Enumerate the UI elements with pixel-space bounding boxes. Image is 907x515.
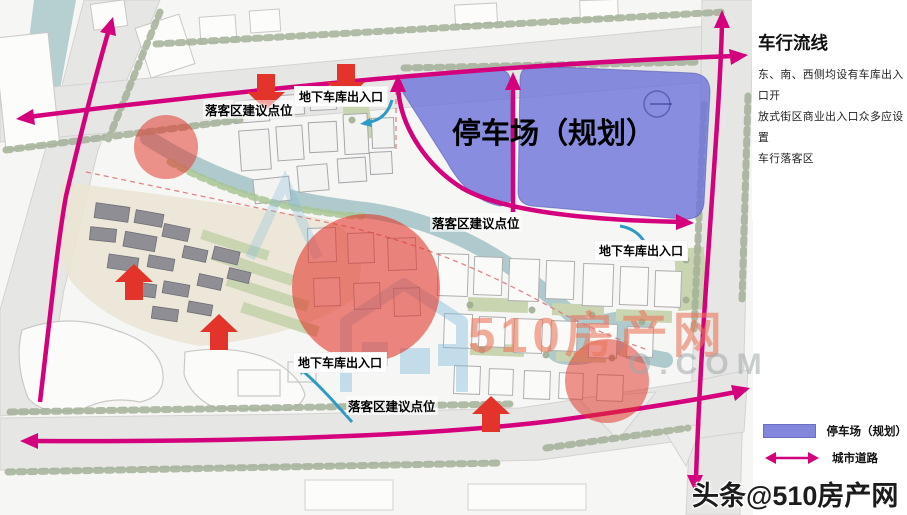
- panel-title: 车行流线: [758, 30, 907, 55]
- legend-row-parking: 停车场（规划）: [763, 421, 907, 441]
- dropoff-label-mid: 落客区建议点位: [430, 213, 522, 232]
- dropoff-label-top: 落客区建议点位: [203, 100, 295, 119]
- parking-color-swatch: [763, 424, 816, 438]
- parking-area-title: 停车场（规划）: [452, 110, 655, 152]
- highlight-circle-center: [292, 214, 440, 362]
- panel-body-line: 放式街区商业出入口众多应设置: [758, 107, 907, 149]
- legend-parking-label: 停车场（规划）: [827, 423, 907, 439]
- legend-road-label: 城市道路: [832, 450, 878, 466]
- legend-row-road: 城市道路: [763, 448, 907, 468]
- garage-label-top: 地下车库出入口: [294, 86, 388, 107]
- panel-body: 东、南、西侧均设有车库出入口开 放式街区商业出入口众多应设置 车行落客区: [758, 65, 907, 170]
- highlight-circle-northwest: [134, 115, 198, 179]
- highlight-circle-southeast: [565, 339, 649, 423]
- legend: 停车场（规划） 城市道路: [763, 421, 907, 475]
- garage-label-mid: 地下车库出入口: [594, 240, 688, 261]
- panel-body-line: 东、南、西侧均设有车库出入口开: [758, 65, 907, 107]
- panel-body-line: 车行落客区: [758, 149, 907, 170]
- garage-label-bottom: 地下车库出入口: [293, 352, 387, 373]
- dropoff-label-bottom: 落客区建议点位: [346, 396, 438, 415]
- watermark-credit: 头条@510房产网: [692, 474, 898, 513]
- road-legend-arrow-icon: [763, 450, 821, 466]
- planning-map-page: 停车场（规划） 落客区建议点位 地下车库出入口 落客区建议点位 地下车库出入口 …: [0, 0, 907, 515]
- info-panel: 车行流线 东、南、西侧均设有车库出入口开 放式街区商业出入口众多应设置 车行落客…: [752, 0, 907, 220]
